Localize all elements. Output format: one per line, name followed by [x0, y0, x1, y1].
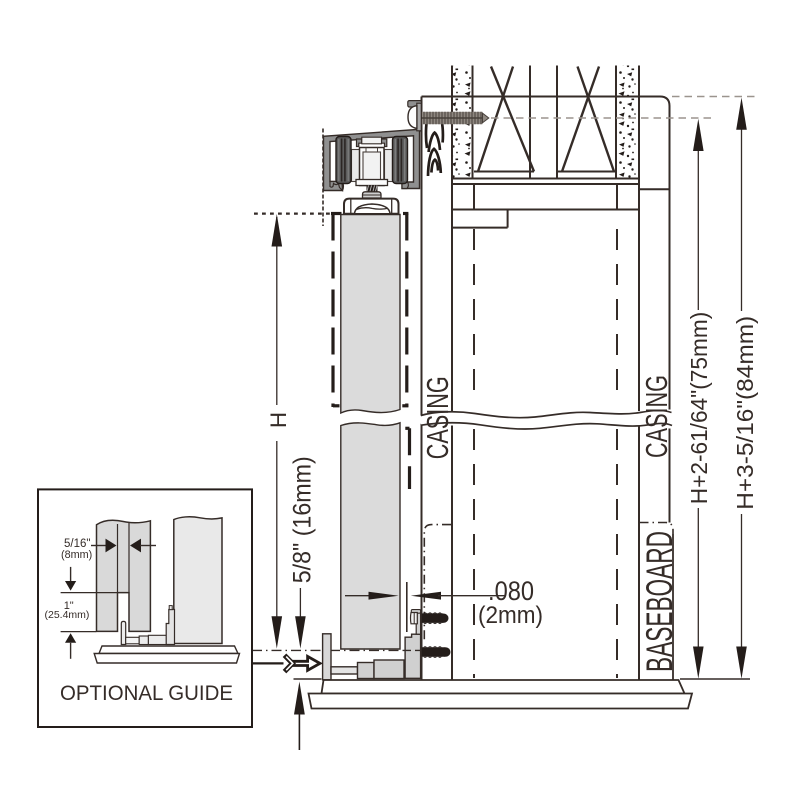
svg-text:BASEBOARD: BASEBOARD — [639, 531, 680, 672]
svg-text:CASING: CASING — [639, 375, 674, 458]
svg-text:(8mm): (8mm) — [61, 549, 92, 561]
svg-text:H+2-61/64"(75mm): H+2-61/64"(75mm) — [686, 312, 712, 505]
svg-text:H+3-5/16"(84mm): H+3-5/16"(84mm) — [732, 316, 758, 510]
svg-text:H: H — [266, 412, 291, 428]
svg-text:(2mm): (2mm) — [478, 602, 543, 629]
svg-text:OPTIONAL GUIDE: OPTIONAL GUIDE — [60, 681, 233, 705]
svg-text:5/8" (16mm): 5/8" (16mm) — [288, 456, 316, 583]
svg-text:(25.4mm): (25.4mm) — [45, 609, 90, 621]
svg-text:CASING: CASING — [420, 376, 455, 459]
